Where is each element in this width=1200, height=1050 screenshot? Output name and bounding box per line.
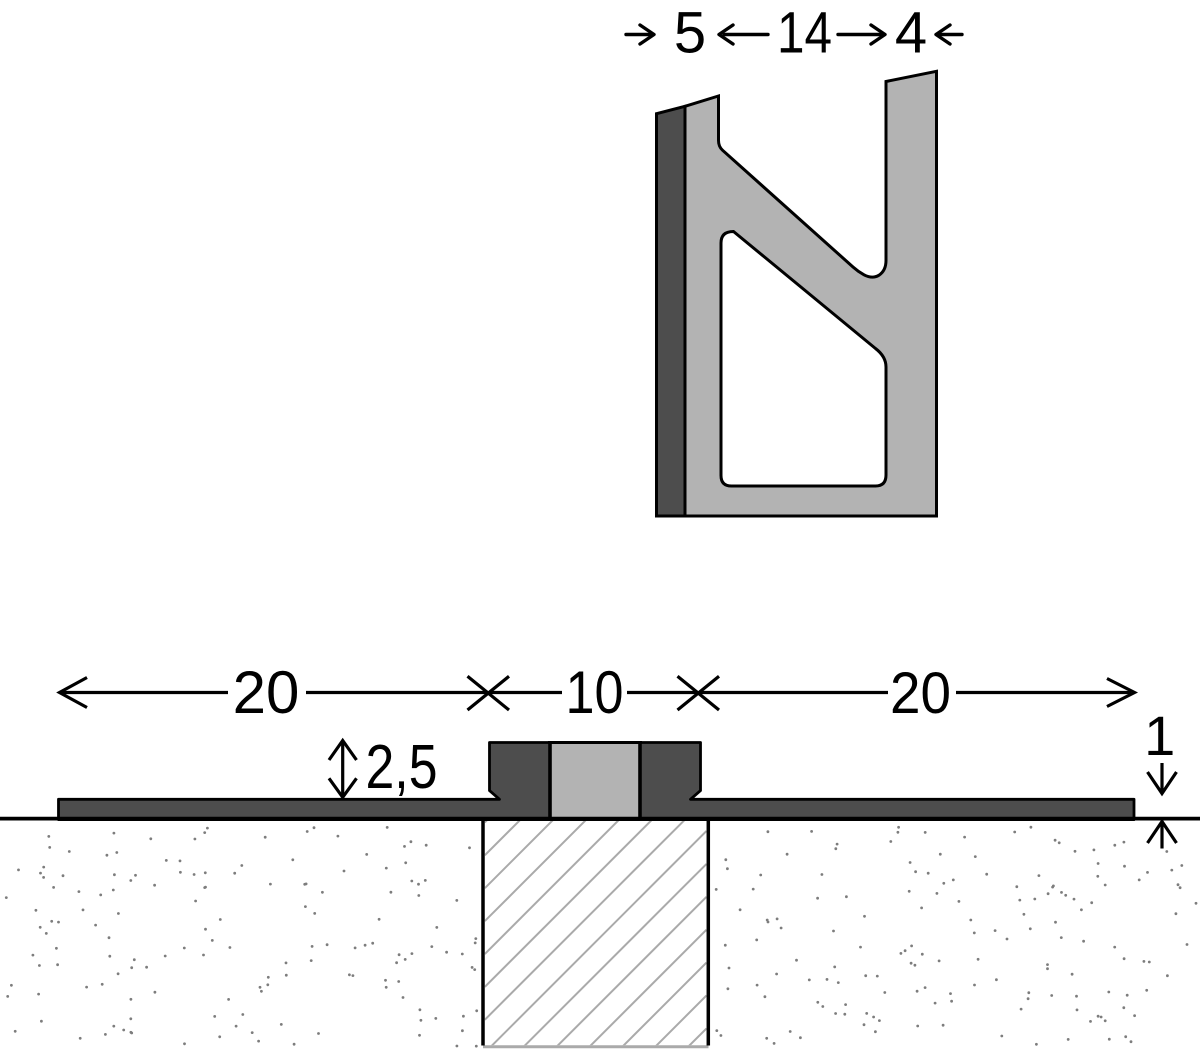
svg-text:20: 20 [890, 661, 951, 726]
svg-text:1: 1 [1144, 704, 1175, 767]
svg-text:5: 5 [674, 1, 706, 66]
svg-text:4: 4 [895, 1, 927, 66]
svg-text:14: 14 [777, 1, 832, 66]
svg-text:10: 10 [566, 659, 624, 726]
svg-text:20: 20 [233, 659, 300, 726]
svg-text:2,5: 2,5 [366, 733, 438, 802]
